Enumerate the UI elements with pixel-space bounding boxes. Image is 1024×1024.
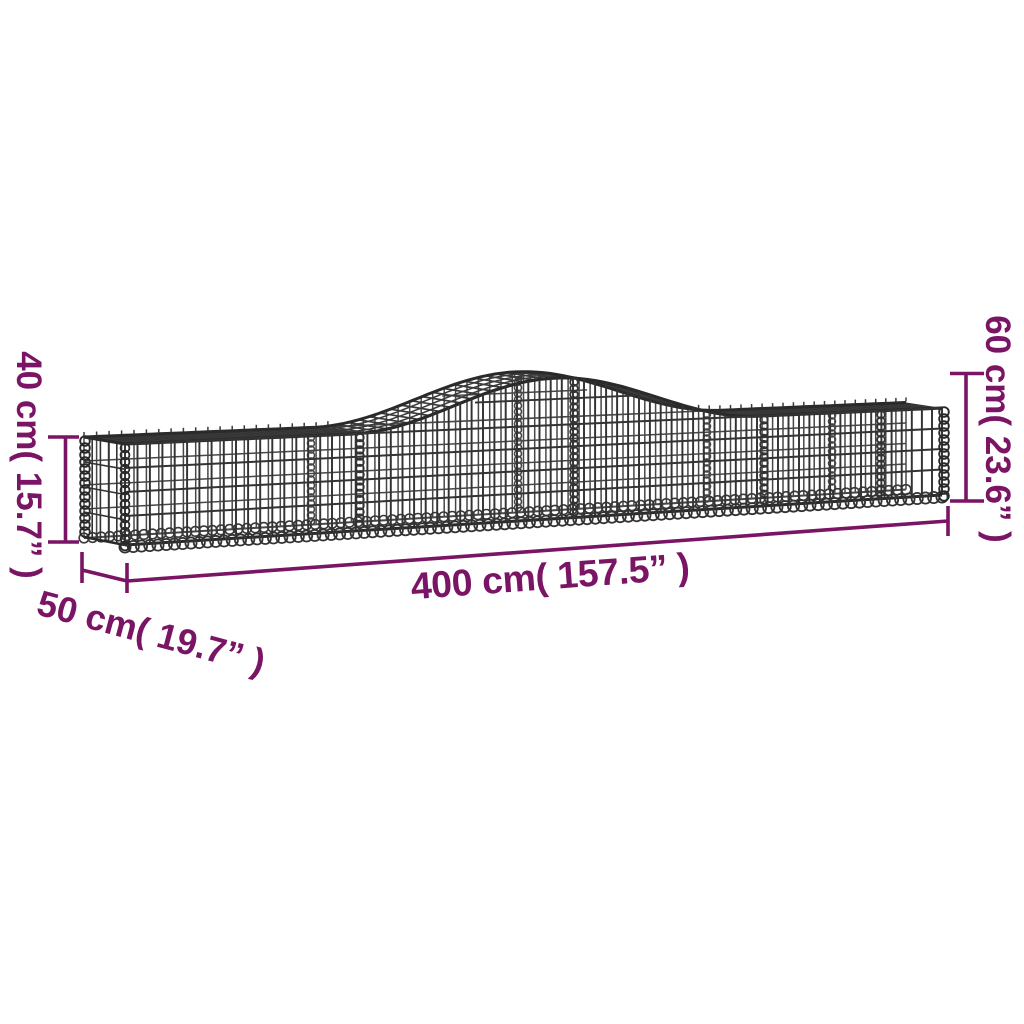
svg-text:50 cm( 19.7” ): 50 cm( 19.7” ) <box>33 582 270 682</box>
svg-text:400 cm( 157.5” ): 400 cm( 157.5” ) <box>409 545 691 607</box>
svg-text:40 cm( 15.7” ): 40 cm( 15.7” ) <box>9 351 48 579</box>
svg-text:60 cm( 23.6” ): 60 cm( 23.6” ) <box>978 315 1017 543</box>
